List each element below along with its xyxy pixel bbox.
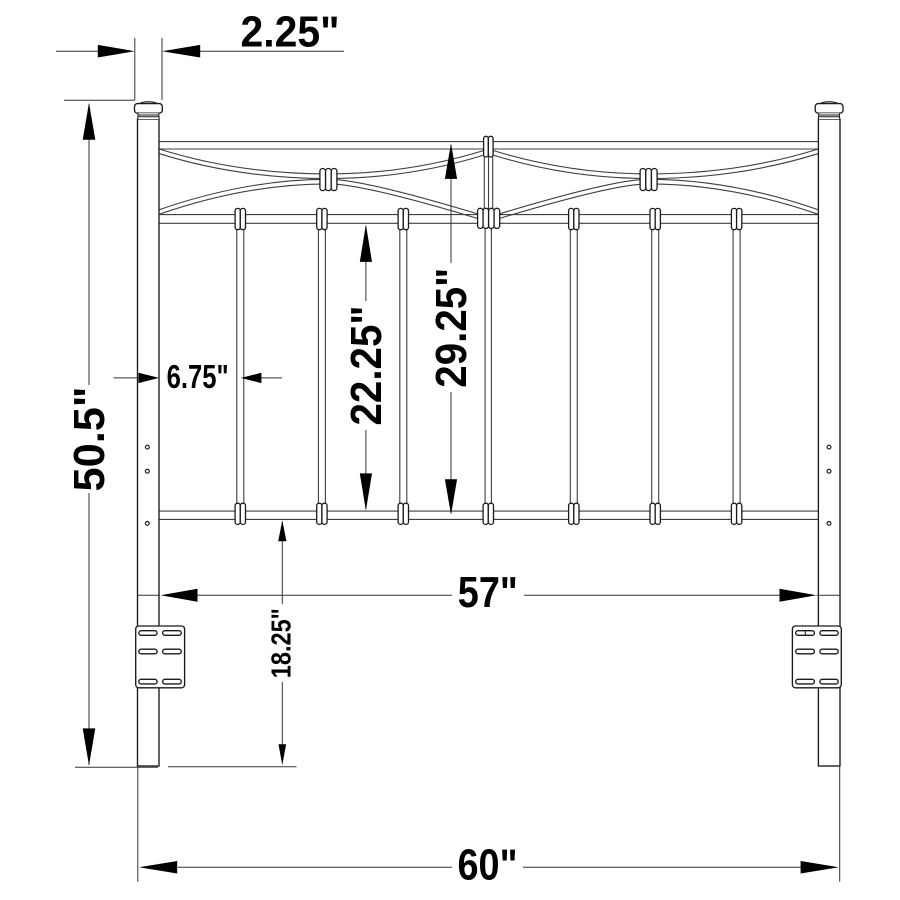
- svg-text:18.25": 18.25": [265, 608, 296, 678]
- svg-text:57": 57": [458, 569, 518, 617]
- svg-text:2.25": 2.25": [241, 8, 340, 56]
- svg-text:29.25": 29.25": [428, 268, 476, 388]
- svg-text:50.5": 50.5": [66, 387, 114, 492]
- svg-text:22.25": 22.25": [343, 306, 391, 426]
- svg-text:60": 60": [458, 842, 518, 890]
- svg-text:6.75": 6.75": [167, 359, 229, 396]
